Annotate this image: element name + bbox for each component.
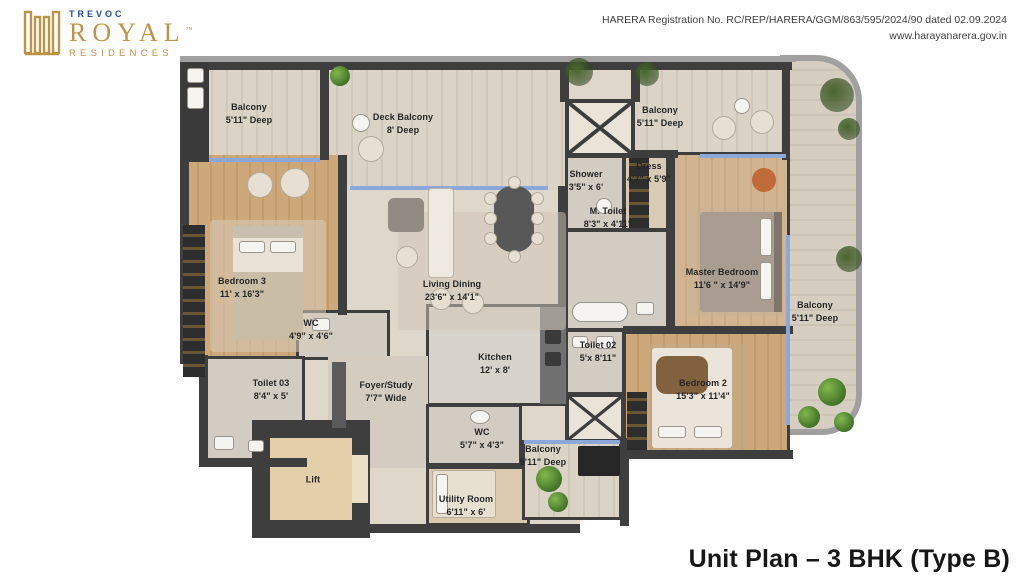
- dining-table: [494, 186, 534, 252]
- glass-window: [192, 158, 320, 162]
- room-label-master: Master Bedroom11'6 " x 14'9": [686, 266, 758, 292]
- glass-window: [700, 154, 786, 158]
- plant: [635, 62, 659, 86]
- coffee-table: [388, 198, 424, 232]
- room-label-wc-bottom: WC5'7" x 4'3": [460, 426, 504, 452]
- floor-plan: Balcony5'11" Deep Deck Balcony8' Deep Ba…: [0, 0, 1024, 579]
- room-label-dress: Dress4'7" x 5'9": [627, 160, 671, 186]
- armchair: [396, 246, 418, 268]
- wall: [180, 62, 792, 70]
- wall: [623, 326, 793, 334]
- plant: [536, 466, 562, 492]
- dining-chair: [484, 232, 497, 245]
- room-label-shower: Shower3'5" x 6': [569, 168, 603, 194]
- wardrobe: [627, 392, 647, 450]
- dining-chair: [484, 212, 497, 225]
- pillow: [760, 218, 772, 256]
- armchair: [247, 172, 273, 198]
- room-label-deck-balcony: Deck Balcony8' Deep: [373, 111, 433, 137]
- dining-chair: [508, 176, 521, 189]
- wall: [320, 62, 329, 160]
- room-label-wc-top: WC4'9" x 4'6": [289, 317, 333, 343]
- appliance: [187, 68, 204, 83]
- pillow: [658, 426, 686, 438]
- deck-table: [352, 114, 370, 132]
- pillow: [239, 241, 265, 253]
- wall: [199, 458, 307, 467]
- washbasin: [214, 436, 234, 450]
- armchair: [280, 168, 310, 198]
- room-label-living: Living Dining23'6" x 14'1": [423, 278, 481, 304]
- page: TREVOC ROYAL™ RESIDENCES HARERA Registra…: [0, 0, 1024, 579]
- bed-headboard: [774, 212, 782, 312]
- sofa: [428, 188, 454, 278]
- room-label-kitchen: Kitchen12' x 8': [478, 351, 512, 377]
- room-label-toilet03: Toilet 038'4" x 5': [253, 377, 290, 403]
- plant: [836, 246, 862, 272]
- accent-chair: [752, 168, 776, 192]
- room-label-balcony-bottom: Balcony5'11" Deep: [520, 443, 566, 469]
- plant: [330, 66, 350, 86]
- wardrobe: [183, 225, 205, 377]
- pillow: [760, 262, 772, 300]
- room-label-bedroom3: Bedroom 311' x 16'3": [218, 275, 266, 301]
- room-label-balcony-tr: Balcony5'11" Deep: [637, 104, 683, 130]
- room-label-balcony-right: Balcony5'11" Deep: [792, 299, 838, 325]
- dining-chair: [508, 250, 521, 263]
- balcony-right-floor: [780, 61, 856, 429]
- wall: [623, 450, 793, 459]
- room-label-toilet02: Toilet 025'x 8'11": [580, 339, 617, 365]
- pillow: [270, 241, 296, 253]
- room-label-lift: Lift: [306, 473, 320, 486]
- room-label-balcony-tl: Balcony5'11" Deep: [226, 101, 272, 127]
- duct-x-icon: [569, 103, 631, 153]
- pillow: [694, 426, 722, 438]
- plant: [798, 406, 820, 428]
- plant: [820, 78, 854, 112]
- duct-shaft-bottom: [565, 393, 625, 443]
- plant: [548, 492, 568, 512]
- wall: [633, 150, 678, 158]
- bathtub: [572, 302, 628, 322]
- cooktop: [545, 330, 561, 344]
- balcony-chair: [712, 116, 736, 140]
- appliance: [187, 87, 204, 109]
- plant: [838, 118, 860, 140]
- tv-unit: [578, 446, 620, 476]
- room-label-bedroom2: Bedroom 215'3" x 11'4": [676, 377, 730, 403]
- wall: [338, 155, 347, 315]
- balcony-table: [734, 98, 750, 114]
- foyer-console: [332, 362, 346, 428]
- room-label-utility: Utility Room6'11" x 6': [439, 493, 493, 519]
- rug: [398, 212, 566, 330]
- balcony-chair: [750, 110, 774, 134]
- room-label-m-toilet: M. Toilet8'3" x 4'11": [584, 205, 633, 231]
- dining-chair: [531, 232, 544, 245]
- duct-shaft-top: [565, 99, 635, 157]
- dining-chair: [531, 212, 544, 225]
- dining-chair: [531, 192, 544, 205]
- plant: [818, 378, 846, 406]
- deck-chair: [358, 136, 384, 162]
- dining-chair: [484, 192, 497, 205]
- plant: [565, 58, 593, 86]
- wall: [362, 524, 580, 533]
- duct-x-icon: [569, 397, 621, 439]
- washbasin: [470, 410, 490, 424]
- plant: [834, 412, 854, 432]
- bed-headboard: [233, 226, 303, 238]
- room-label-foyer: Foyer/Study7'7" Wide: [359, 379, 412, 405]
- plan-title: Unit Plan – 3 BHK (Type B): [689, 545, 1010, 574]
- toilet-fixture: [248, 440, 264, 452]
- glass-window: [786, 235, 790, 425]
- wall: [782, 62, 790, 160]
- washbasin: [636, 302, 654, 315]
- lift-door: [352, 455, 368, 503]
- cooktop: [545, 352, 561, 366]
